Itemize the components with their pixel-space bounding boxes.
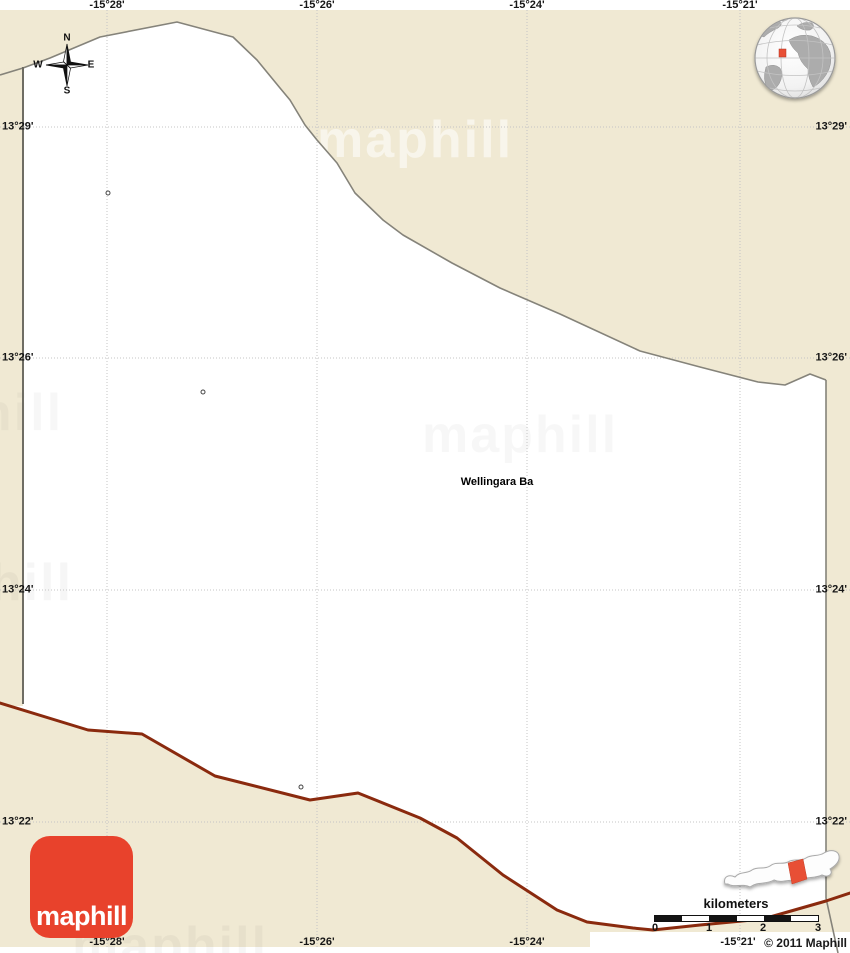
copyright-text: © 2011 Maphill xyxy=(764,936,847,950)
compass-west-label: W xyxy=(33,60,42,71)
grid-label-left-2: 13°24' xyxy=(2,585,34,596)
map-page: maphill maphill maphill maphill maphill xyxy=(0,0,850,953)
grid-label-left-3: 13°22' xyxy=(2,817,34,828)
settlement-marker xyxy=(106,191,110,195)
grid-label-top-0: -15°28' xyxy=(89,0,124,11)
scale-segment xyxy=(791,916,818,921)
settlement-markers xyxy=(106,191,303,789)
grid-label-bottom-2: -15°24' xyxy=(509,937,544,948)
grid-label-left-1: 13°26' xyxy=(2,353,34,364)
scale-tick-3: 3 xyxy=(815,922,821,934)
watermark-left-upper: maphill xyxy=(0,384,63,442)
grid-label-left-0: 13°29' xyxy=(2,122,34,133)
settlement-marker xyxy=(299,785,303,789)
compass-south-label: S xyxy=(64,86,71,97)
scale-segment xyxy=(655,916,682,921)
maphill-logo-label: maphill xyxy=(30,903,133,930)
grid-label-right-2: 13°24' xyxy=(816,585,848,596)
scale-bar xyxy=(654,915,819,922)
grid-label-right-3: 13°22' xyxy=(816,817,848,828)
settlement-marker xyxy=(201,390,205,394)
scale-tick-2: 2 xyxy=(760,922,766,934)
scale-tick-0: 0 xyxy=(652,922,658,934)
scale-unit-label: kilometers xyxy=(703,896,768,911)
compass-north-label: N xyxy=(63,33,70,44)
country-outline xyxy=(725,851,840,887)
scale-segment xyxy=(709,916,736,921)
grid-label-bottom-1: -15°26' xyxy=(299,937,334,948)
place-label: Wellingara Ba xyxy=(461,476,534,488)
grid-label-right-1: 13°26' xyxy=(816,353,848,364)
scale-tick-1: 1 xyxy=(706,922,712,934)
compass-east-label: E xyxy=(88,60,95,71)
grid-label-top-1: -15°26' xyxy=(299,0,334,11)
grid-label-bottom-3: -15°21' xyxy=(720,937,755,948)
maphill-logo[interactable]: maphill xyxy=(30,836,133,938)
grid-label-bottom-0: -15°28' xyxy=(89,937,124,948)
grid-label-right-0: 13°29' xyxy=(816,122,848,133)
globe-location-marker xyxy=(779,49,786,57)
scale-segment xyxy=(764,916,791,921)
country-locator[interactable] xyxy=(725,851,840,887)
watermark-top: maphill xyxy=(317,111,513,169)
scale-segment xyxy=(737,916,764,921)
scale-segment xyxy=(682,916,709,921)
grid-label-top-3: -15°21' xyxy=(722,0,757,11)
watermark-center: maphill xyxy=(422,406,618,464)
map-canvas: maphill maphill maphill maphill maphill xyxy=(0,0,850,953)
grid-label-top-2: -15°24' xyxy=(509,0,544,11)
